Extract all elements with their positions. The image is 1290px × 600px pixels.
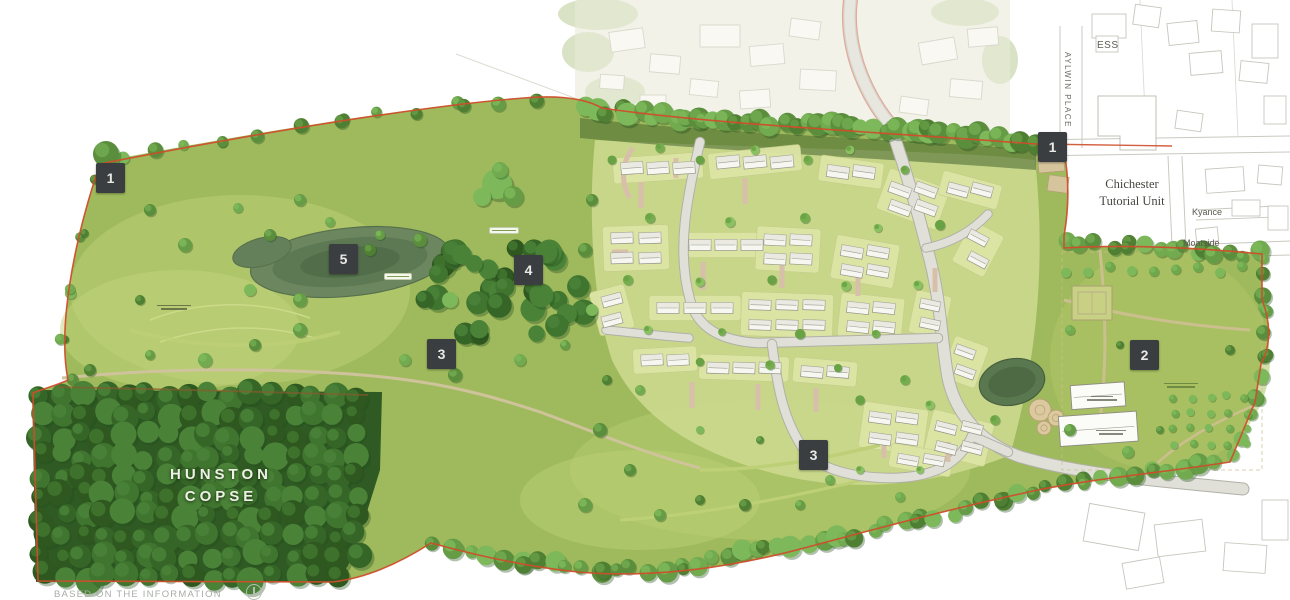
- hunston-copse-label-line2: COPSE: [146, 486, 296, 508]
- kyance-label: Kyance: [1192, 207, 1222, 217]
- key-marker-3-central: 3: [427, 339, 456, 369]
- woodland-micro-label-pill: [489, 227, 519, 234]
- allotments-micro-label: [1162, 383, 1200, 388]
- community-hub-micro-label: [1086, 396, 1118, 401]
- hunston-copse-label: HUNSTON COPSE: [146, 464, 296, 508]
- basin-micro-label-pill: [384, 273, 412, 280]
- key-marker-4-woodland: 4: [514, 255, 543, 285]
- key-marker-5-pond: 5: [329, 244, 358, 274]
- aylwin-place-street-label: AYLWIN PLACE: [1063, 52, 1072, 162]
- drawing-caption: BASED ON THE INFORMATION: [54, 589, 222, 600]
- site-plan-canvas: 1 1 2 3 3 4 5 HUNSTON COPSE Chichester T…: [0, 0, 1290, 600]
- key-marker-1-west: 1: [96, 163, 125, 193]
- north-arrow-icon: [246, 584, 262, 600]
- chichester-label-line1: Chichester: [1074, 176, 1190, 193]
- hunston-copse-label-line1: HUNSTON: [146, 464, 296, 486]
- chichester-tutorial-unit-label: Chichester Tutorial Unit: [1074, 176, 1190, 210]
- key-marker-3-south: 3: [799, 440, 828, 470]
- moatside-label: Moatside: [1183, 238, 1220, 248]
- meadow-micro-label: [155, 305, 193, 310]
- chichester-label-line2: Tutorial Unit: [1074, 193, 1190, 210]
- ess-label: ESS: [1097, 40, 1119, 51]
- orchard-micro-label: [1094, 430, 1128, 435]
- site-plan-illustration: [0, 0, 1290, 600]
- key-marker-2-east: 2: [1130, 340, 1159, 370]
